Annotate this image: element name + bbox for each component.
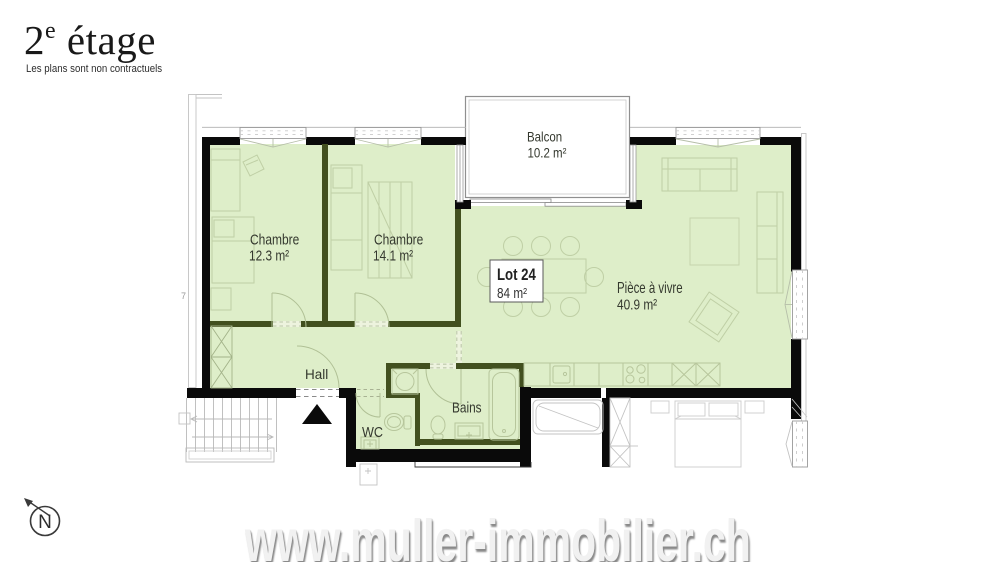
svg-text:Chambre: Chambre xyxy=(250,231,299,248)
svg-text:Pièce à vivre: Pièce à vivre xyxy=(617,279,683,296)
svg-text:WC: WC xyxy=(362,424,383,440)
svg-text:40.9 m²: 40.9 m² xyxy=(617,296,658,313)
svg-text:12.3 m²: 12.3 m² xyxy=(249,247,290,264)
svg-text:N: N xyxy=(38,512,52,533)
svg-text:7: 7 xyxy=(181,291,186,301)
svg-text:Chambre: Chambre xyxy=(374,231,423,248)
svg-text:Bains: Bains xyxy=(452,399,482,416)
svg-text:14.1 m²: 14.1 m² xyxy=(373,247,414,264)
svg-text:Lot 24: Lot 24 xyxy=(497,266,536,285)
svg-text:10.2 m²: 10.2 m² xyxy=(528,144,568,160)
svg-text:Hall: Hall xyxy=(305,367,328,382)
svg-text:84 m²: 84 m² xyxy=(497,285,528,301)
svg-text:Balcon: Balcon xyxy=(527,128,562,144)
